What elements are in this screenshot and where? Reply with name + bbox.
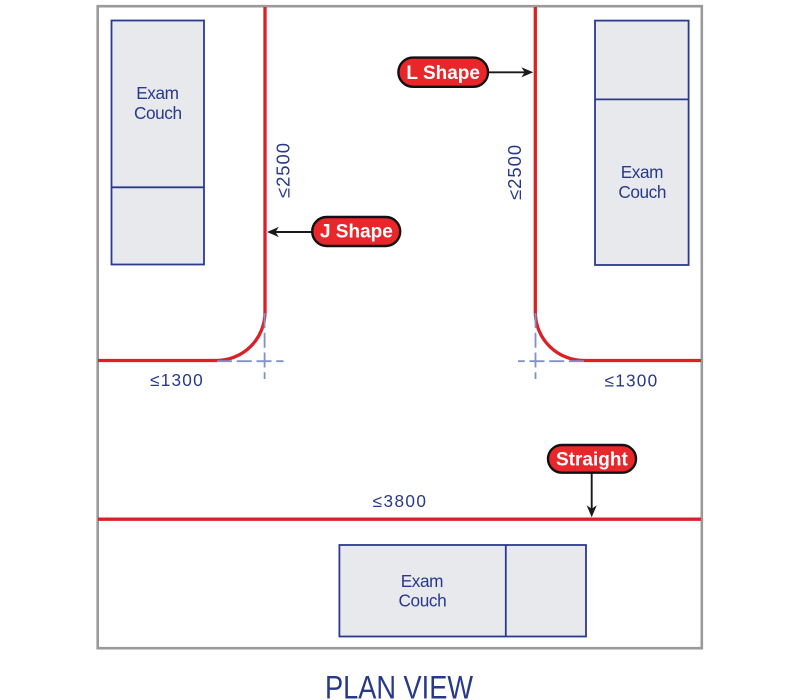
svg-text:Exam: Exam [621, 162, 663, 182]
svg-text:≤2500: ≤2500 [272, 142, 293, 198]
svg-text:PLAN VIEW: PLAN VIEW [325, 670, 473, 700]
svg-text:≤1300: ≤1300 [150, 370, 204, 390]
svg-text:Exam: Exam [136, 83, 178, 103]
svg-text:Exam: Exam [401, 571, 443, 591]
svg-text:Couch: Couch [618, 182, 666, 202]
svg-text:≤1300: ≤1300 [605, 370, 659, 390]
svg-text:L Shape: L Shape [406, 63, 480, 84]
svg-text:≤3800: ≤3800 [373, 491, 428, 511]
svg-text:≤2500: ≤2500 [504, 144, 525, 200]
svg-text:Straight: Straight [556, 450, 628, 471]
svg-text:Couch: Couch [399, 591, 447, 611]
svg-text:Couch: Couch [134, 103, 182, 123]
svg-text:J Shape: J Shape [320, 222, 393, 243]
